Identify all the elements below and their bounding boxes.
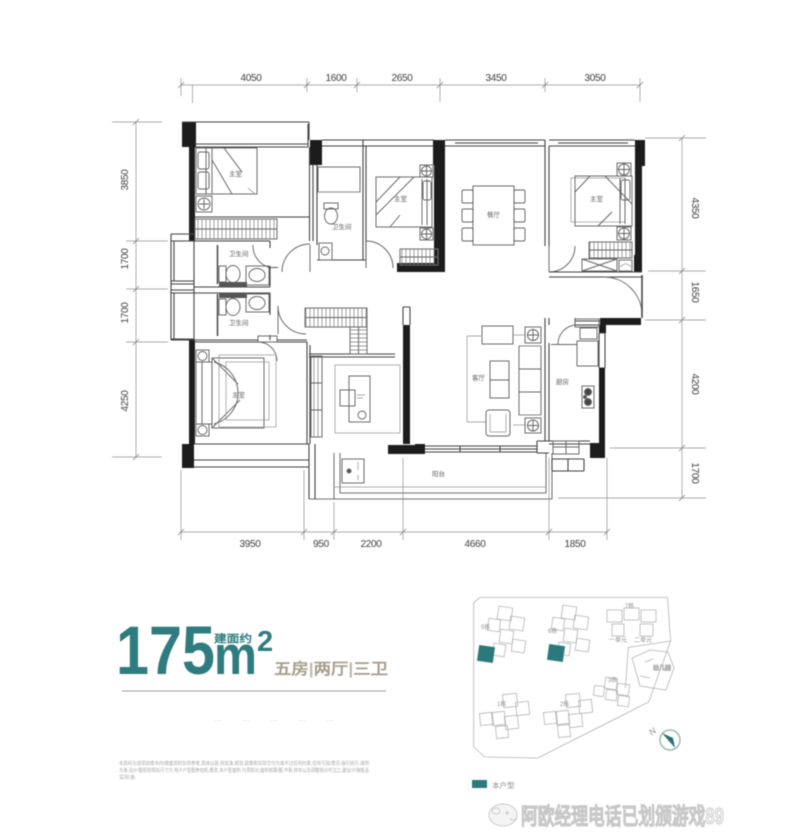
svg-text:主室: 主室 [590,194,604,203]
svg-text:950: 950 [313,539,330,550]
svg-text:卫生间: 卫生间 [229,318,249,327]
svg-text:客厅: 客厅 [472,373,486,382]
svg-text:3450: 3450 [485,73,507,84]
svg-text:3050: 3050 [584,73,606,84]
svg-text:⋯⋯⋯⋯⋯: ⋯⋯⋯⋯⋯ [214,716,354,725]
svg-text:五房|两厅|三卫: 五房|两厅|三卫 [274,659,389,678]
svg-text:1600: 1600 [325,73,347,84]
svg-text:2650: 2650 [391,73,413,84]
svg-text:1栋: 1栋 [497,700,506,708]
svg-text:幼儿园: 幼儿园 [653,664,671,672]
svg-text:厨房: 厨房 [556,377,569,386]
svg-text:实际准.: 实际准. [119,773,136,781]
svg-text:2200: 2200 [360,539,382,550]
svg-text:4050: 4050 [240,73,262,84]
svg-text:3850: 3850 [120,169,131,191]
svg-text:卫生间: 卫生间 [229,249,249,258]
svg-text:4350: 4350 [689,197,700,219]
svg-text:卫生间: 卫生间 [332,222,352,231]
svg-text:1700: 1700 [120,248,131,270]
svg-text:5栋: 5栋 [481,623,490,631]
svg-text:二单元: 二单元 [634,636,652,644]
svg-text:阿欧经理电话已划颁游戏89: 阿欧经理电话已划颁游戏89 [521,803,724,829]
svg-text:4660: 4660 [464,539,486,550]
svg-text:主室: 主室 [394,194,408,203]
svg-text:4250: 4250 [120,390,131,412]
svg-text:175: 175 [116,612,215,689]
svg-text:4200: 4200 [689,373,700,395]
svg-text:为准,设计/图纸和相关尺寸只,电子户型图参拍机,概念,本户型: 为准,设计/图纸和相关尺寸只,电子户型图参拍机,概念,本户型面积.均须核对,面积… [119,766,369,774]
svg-text:2: 2 [257,626,273,658]
svg-text:建面约: 建面约 [213,632,252,645]
svg-text:2栋: 2栋 [560,700,569,708]
svg-text:阳台: 阳台 [432,469,445,478]
svg-text:主室: 主室 [232,390,246,399]
svg-text:1700: 1700 [120,302,131,324]
svg-text:主室: 主室 [229,169,243,178]
svg-text:1700: 1700 [689,462,700,484]
svg-text:1650: 1650 [689,281,700,303]
svg-text:3950: 3950 [239,539,261,550]
svg-text:一单元: 一单元 [609,636,627,644]
svg-text:本户型: 本户型 [492,780,515,790]
svg-text:本资料为该项目楼书内/楼盘资料仅供参考,具体以政.府批准,规: 本资料为该项目楼书内/楼盘资料仅供参考,具体以政.府批准,规划,政策和实际交付为… [119,759,369,767]
svg-text:3栋: 3栋 [608,676,617,684]
svg-text:6栋: 6栋 [548,627,557,635]
svg-text:7栋: 7栋 [625,602,634,610]
svg-text:餐厅: 餐厅 [487,210,501,219]
svg-text:1850: 1850 [564,539,586,550]
